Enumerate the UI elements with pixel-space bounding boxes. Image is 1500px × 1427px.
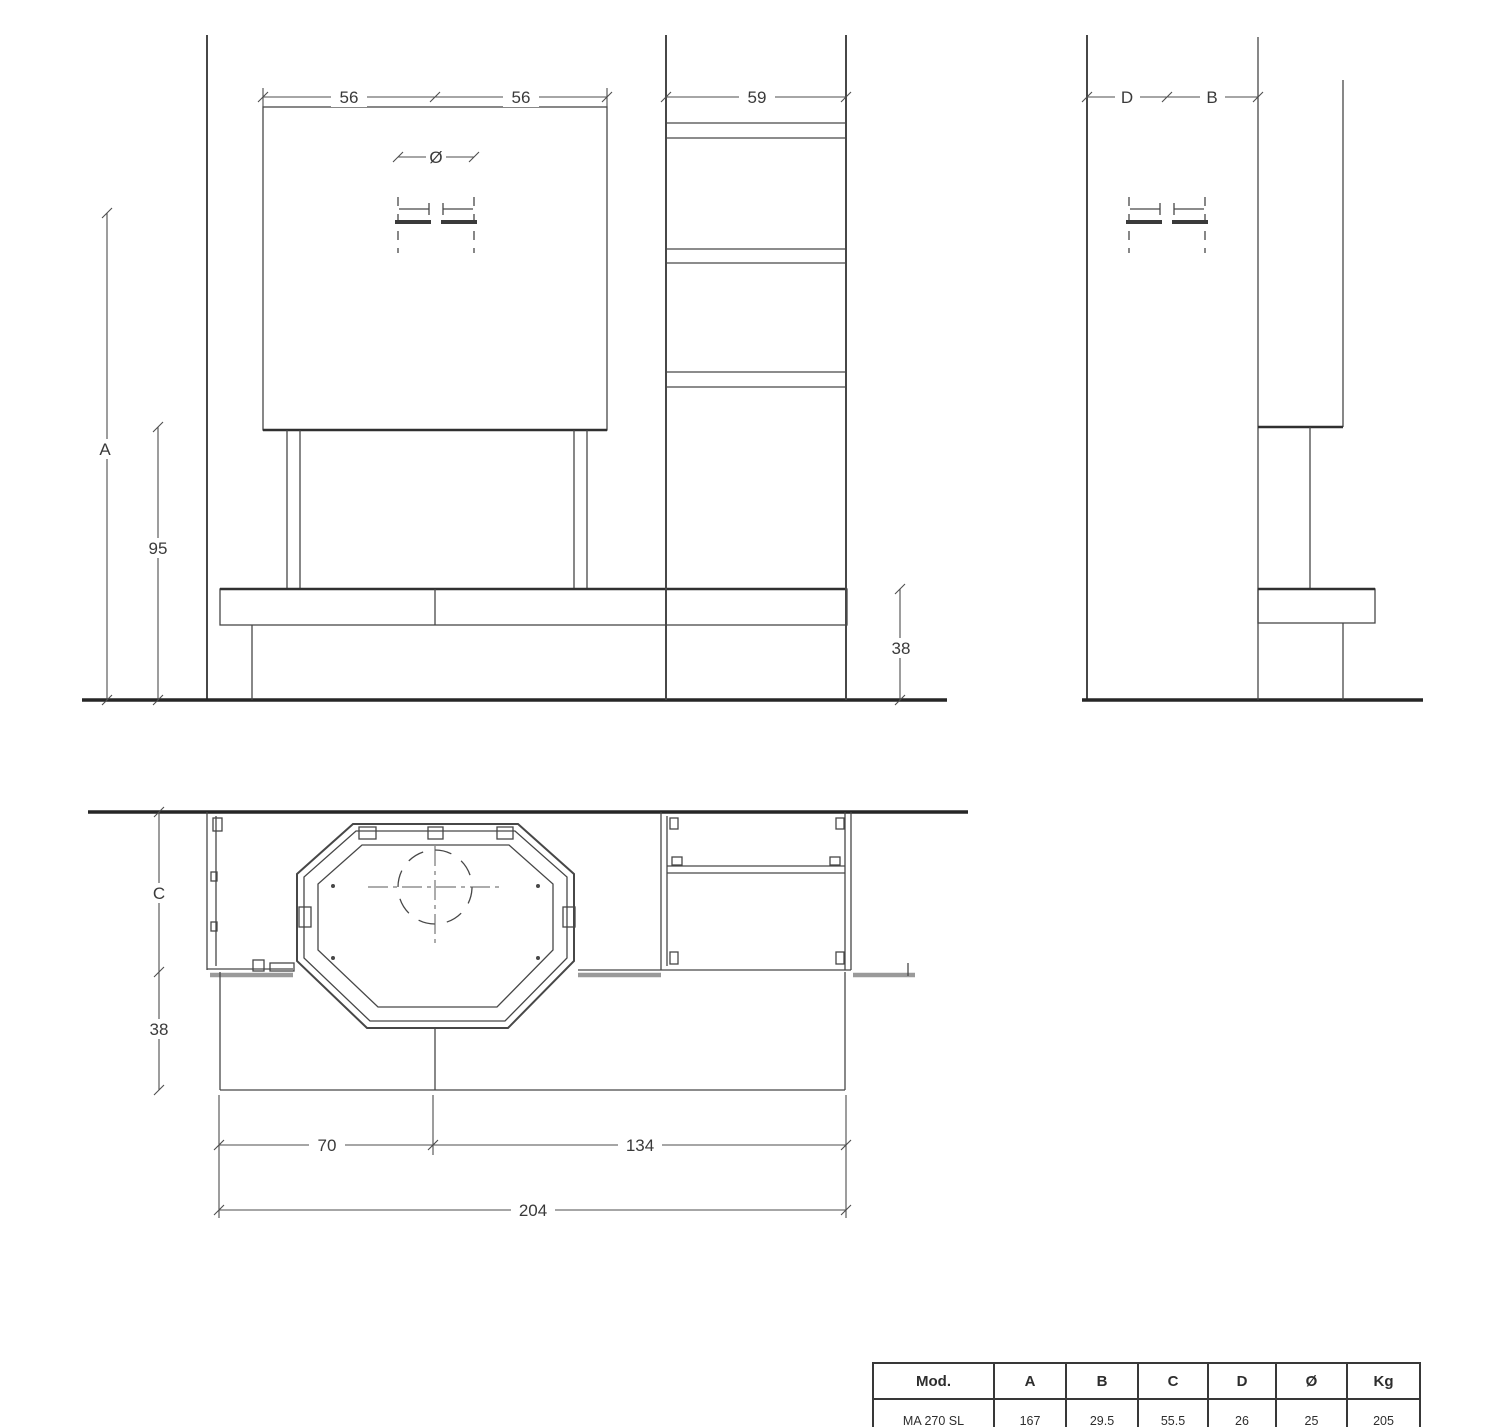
dim-label-56-left: 56 (340, 88, 359, 107)
dim-label-70: 70 (318, 1136, 337, 1155)
spec-header-diameter: Ø (1276, 1363, 1347, 1399)
spec-header-c: C (1138, 1363, 1208, 1399)
flue-symbol-side (1126, 197, 1208, 253)
dim-label-59: 59 (748, 88, 767, 107)
spec-value-d: 26 (1208, 1399, 1276, 1427)
dim-label-38-front: 38 (892, 639, 911, 658)
spec-table-header-row: Mod. A B C D Ø Kg (873, 1363, 1420, 1399)
flue-symbol-front (395, 197, 477, 253)
spec-value-b: 29.5 (1066, 1399, 1138, 1427)
spec-header-kg: Kg (1347, 1363, 1420, 1399)
dim-label-38-plan: 38 (150, 1020, 169, 1039)
spec-header-b: B (1066, 1363, 1138, 1399)
spec-value-diameter: 25 (1276, 1399, 1347, 1427)
side-view (1082, 35, 1423, 700)
spec-value-c: 55.5 (1138, 1399, 1208, 1427)
plan-view-dimensions: C 38 70 134 204 (141, 807, 851, 1221)
technical-drawing-page: 56 56 59 Ø A 95 38 (0, 0, 1500, 1427)
front-view (82, 35, 947, 700)
side-view-dimensions: D B (1082, 88, 1263, 107)
spec-table: Mod. A B C D Ø Kg MA 270 SL 167 29.5 55.… (872, 1362, 1419, 1427)
plan-view (88, 812, 968, 1090)
dim-label-D: D (1121, 88, 1133, 107)
spec-table-grid: Mod. A B C D Ø Kg MA 270 SL 167 29.5 55.… (872, 1362, 1421, 1427)
dim-label-B: B (1206, 88, 1217, 107)
dim-label-C: C (153, 884, 165, 903)
spec-table-data-row: MA 270 SL 167 29.5 55.5 26 25 205 (873, 1399, 1420, 1427)
spec-header-mod: Mod. (873, 1363, 994, 1399)
dim-label-A: A (99, 440, 111, 459)
dim-label-134: 134 (626, 1136, 654, 1155)
dim-label-flue-diameter: Ø (429, 148, 442, 167)
spec-value-kg: 205 (1347, 1399, 1420, 1427)
dim-label-204: 204 (519, 1201, 547, 1220)
plan-column-block (661, 812, 851, 970)
dim-label-56-right: 56 (512, 88, 531, 107)
front-view-dimensions: 56 56 59 Ø A 95 38 (93, 88, 919, 705)
spec-value-a: 167 (994, 1399, 1066, 1427)
side-hearth (1258, 589, 1375, 623)
hearth-bench (220, 589, 847, 625)
drawing-canvas: 56 56 59 Ø A 95 38 (0, 0, 1500, 1427)
dim-label-95: 95 (149, 539, 168, 558)
plan-octagon-stove (297, 824, 575, 1090)
spec-header-a: A (994, 1363, 1066, 1399)
spec-header-d: D (1208, 1363, 1276, 1399)
spec-value-model: MA 270 SL (873, 1399, 994, 1427)
